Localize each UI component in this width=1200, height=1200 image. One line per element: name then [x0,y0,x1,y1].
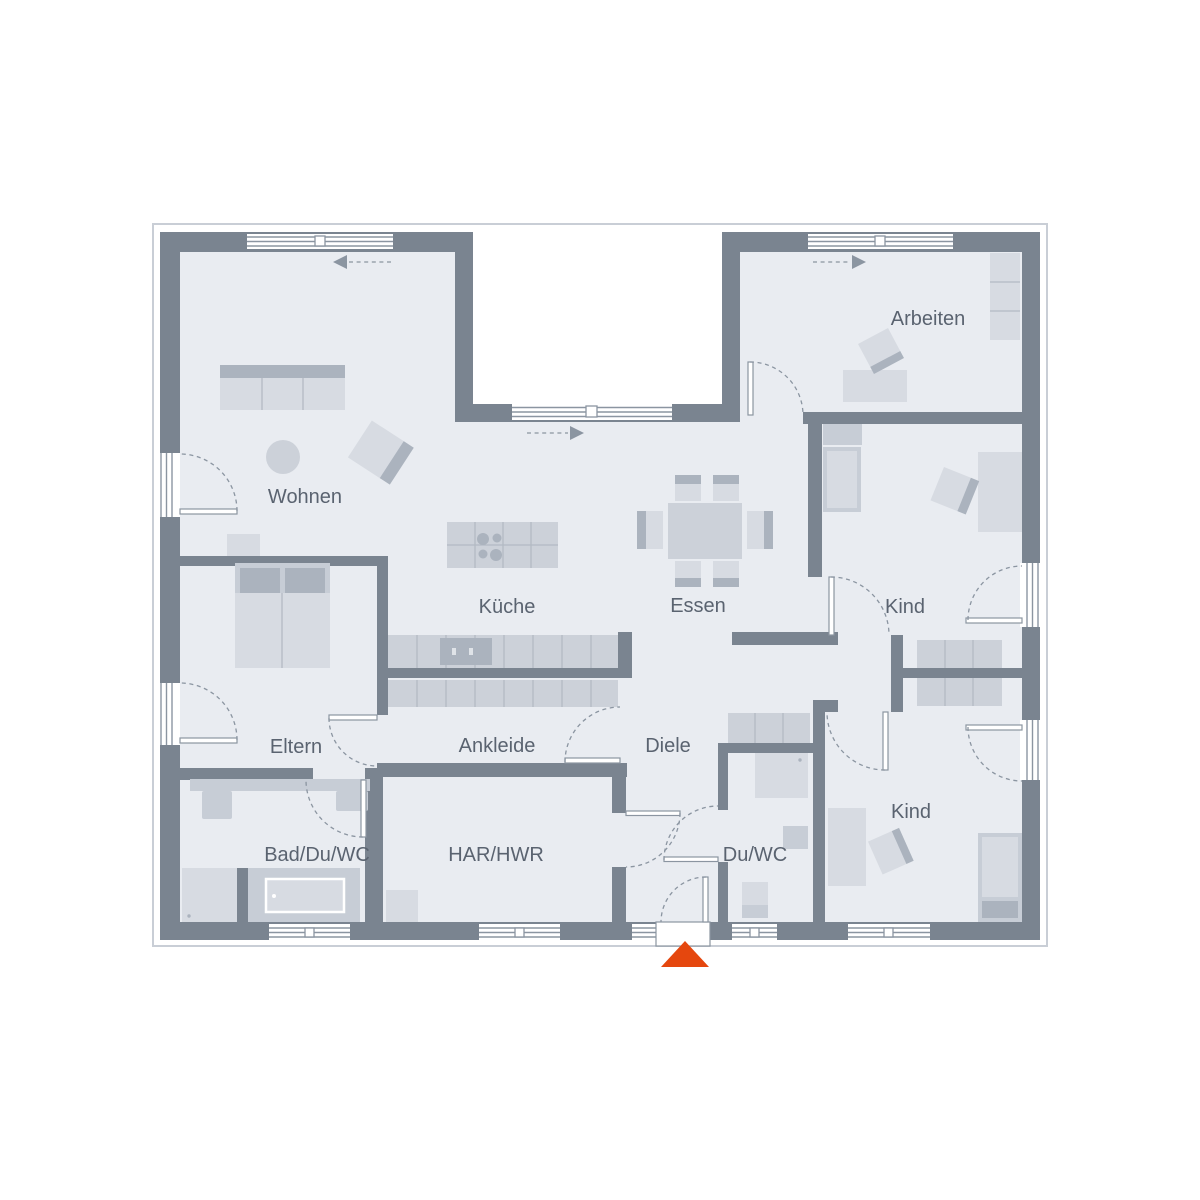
room-label-essen: Essen [670,595,726,617]
sliding-window-arbeiten [808,234,953,249]
window-har [479,924,560,945]
bed-kind-1 [823,447,861,512]
door-leaf-duwc [664,857,718,862]
round-rug [266,440,300,474]
room-label-diele: Diele [645,735,691,757]
kitchen-counter [388,635,618,668]
room-label-arbeiten: Arbeiten [891,308,966,330]
sideboard [227,534,260,556]
floor-plan-canvas: Wohnen Küche Essen Arbeiten Kind Kind El… [0,0,1200,1200]
door-leaf-terrace-kind-2 [966,725,1022,730]
room-label-eltern: Eltern [270,736,322,758]
entrance-door [656,922,710,946]
bathtub [248,868,360,922]
window-duwc [732,924,777,945]
door-leaf-har [626,811,680,816]
door-leaf-terrace-wohnen [180,509,237,514]
dining-table [668,503,742,559]
shelf-arbeiten [990,253,1020,340]
room-label-duwc: Du/WC [723,844,787,866]
wc-duwc [742,882,768,918]
room-label-bad: Bad/Du/WC [264,844,370,866]
hall-closet [728,713,810,743]
room-label-ankleide: Ankleide [459,735,536,757]
door-leaf-arbeiten [748,362,753,415]
double-bed [235,563,330,668]
terrace-door-eltern [157,683,180,745]
bed-kind-2 [978,833,1022,922]
entrance-sidelight [632,924,656,940]
terrace-door-kind-2 [1020,720,1043,780]
terrace-door-kind-1 [1020,563,1043,627]
door-leaf-kind-1 [829,577,834,635]
sink-icon [440,638,492,665]
window-kind-2 [848,924,930,945]
door-leaf-terrace-kind-1 [966,618,1022,623]
door-leaf-ankleide-eltern [329,715,377,720]
terrace-door-wohnen [157,453,180,517]
door-leaf-entrance [703,877,708,922]
sofa [220,365,345,410]
desk-arbeiten [843,370,907,402]
washing-machine [386,890,418,922]
sliding-window-wohnen [247,234,393,249]
room-label-har: HAR/HWR [448,844,544,866]
window-bad [269,924,350,945]
cabinet-kind-1 [823,424,862,445]
door-leaf-ankleide-diele [565,758,620,763]
room-label-kind-2: Kind [891,801,931,823]
shower-duwc [755,753,808,798]
desk-kind-2 [828,808,866,886]
door-leaf-terrace-eltern [180,738,237,743]
wardrobe-kind-2 [917,678,1002,706]
desk-kind-1 [978,452,1022,532]
room-label-wohnen: Wohnen [268,486,342,508]
wardrobe-kind-1 [917,640,1002,668]
sliding-window-terrace-notch [512,404,672,420]
door-leaf-bad [361,780,366,837]
room-label-kueche: Küche [479,596,536,618]
wardrobe-ankleide [388,680,618,707]
shower-bad [182,868,237,922]
door-leaf-kind-2 [883,712,888,770]
floor-plan-page: Wohnen Küche Essen Arbeiten Kind Kind El… [0,0,1200,1200]
kitchen-island [447,522,558,568]
room-label-kind-1: Kind [885,596,925,618]
